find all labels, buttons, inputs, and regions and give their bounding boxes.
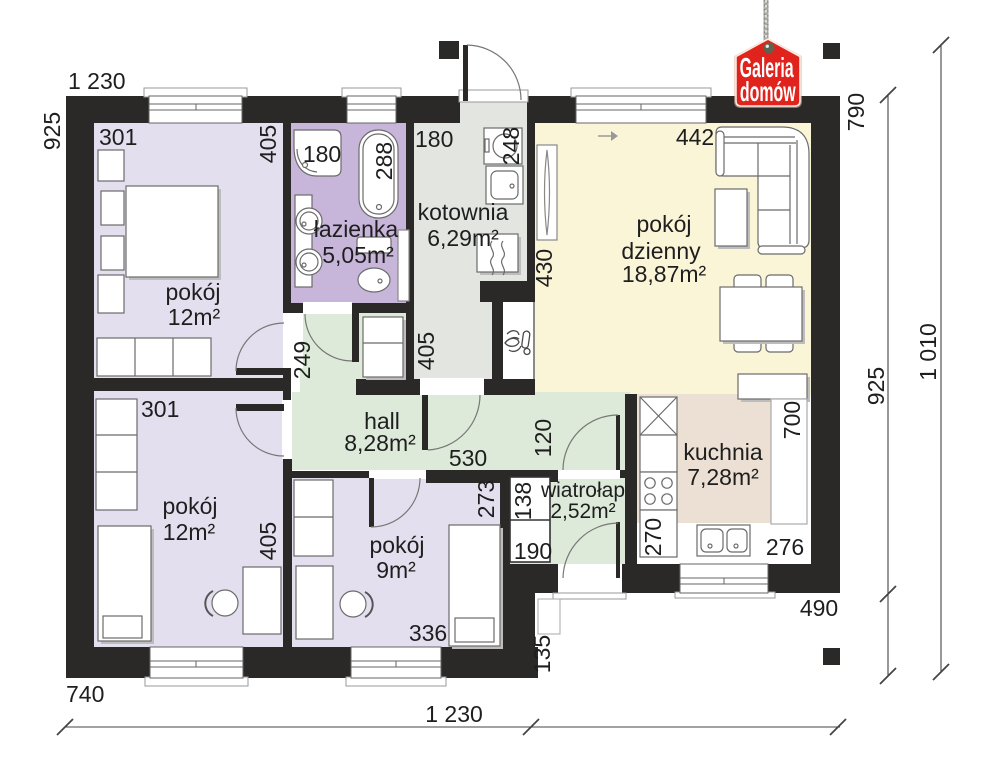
svg-text:490: 490 [800,595,838,621]
svg-text:405: 405 [255,522,281,560]
svg-text:pokój: pokój [163,493,218,519]
svg-text:1 010: 1 010 [915,323,941,381]
svg-text:405: 405 [255,125,281,163]
svg-text:273: 273 [473,480,499,518]
svg-text:288: 288 [371,142,397,180]
svg-text:925: 925 [863,367,889,405]
svg-text:530: 530 [449,445,487,471]
svg-text:120: 120 [530,419,556,457]
svg-text:336: 336 [409,620,447,646]
svg-text:2,52m²: 2,52m² [550,500,615,523]
svg-text:740: 740 [66,681,104,707]
svg-text:wiatrołap: wiatrołap [540,479,625,502]
svg-text:276: 276 [766,534,804,560]
svg-text:domów: domów [740,75,796,107]
svg-text:pokój: pokój [370,532,425,558]
svg-text:9m²: 9m² [376,557,416,583]
svg-text:180: 180 [303,141,341,167]
svg-text:180: 180 [415,126,453,152]
svg-text:12m²: 12m² [163,519,216,545]
svg-text:248: 248 [498,127,524,165]
svg-text:7,28m²: 7,28m² [687,464,759,490]
svg-text:442: 442 [676,124,714,150]
svg-text:1 230: 1 230 [425,701,483,727]
svg-text:790: 790 [843,93,869,131]
svg-text:pokój: pokój [637,211,692,237]
svg-text:6,29m²: 6,29m² [427,225,499,251]
svg-text:430: 430 [531,249,557,287]
svg-text:kotownia: kotownia [418,199,509,225]
svg-text:5,05m²: 5,05m² [322,242,394,268]
svg-text:301: 301 [141,396,179,422]
svg-text:18,87m²: 18,87m² [622,261,707,287]
svg-text:301: 301 [99,124,137,150]
svg-text:135: 135 [529,635,555,673]
svg-text:190: 190 [514,538,552,564]
svg-text:pokój: pokój [166,279,221,305]
svg-text:12m²: 12m² [168,304,221,330]
svg-text:kuchnia: kuchnia [683,439,762,465]
svg-text:138: 138 [510,482,536,520]
svg-text:8,28m²: 8,28m² [344,430,416,456]
svg-text:925: 925 [39,112,65,150]
svg-text:700: 700 [779,401,805,439]
svg-text:249: 249 [289,341,315,379]
svg-text:łazienka: łazienka [314,216,399,242]
svg-text:405: 405 [413,332,439,370]
svg-text:270: 270 [640,518,666,556]
svg-text:1 230: 1 230 [68,68,126,94]
